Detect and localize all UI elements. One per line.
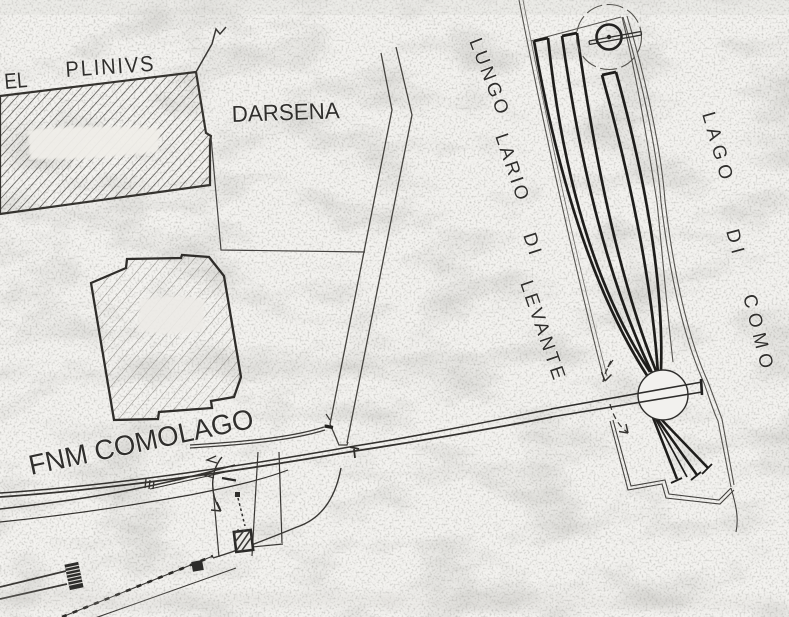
svg-text:EL: EL <box>3 67 28 94</box>
svg-text:DARSENA: DARSENA <box>231 97 340 127</box>
